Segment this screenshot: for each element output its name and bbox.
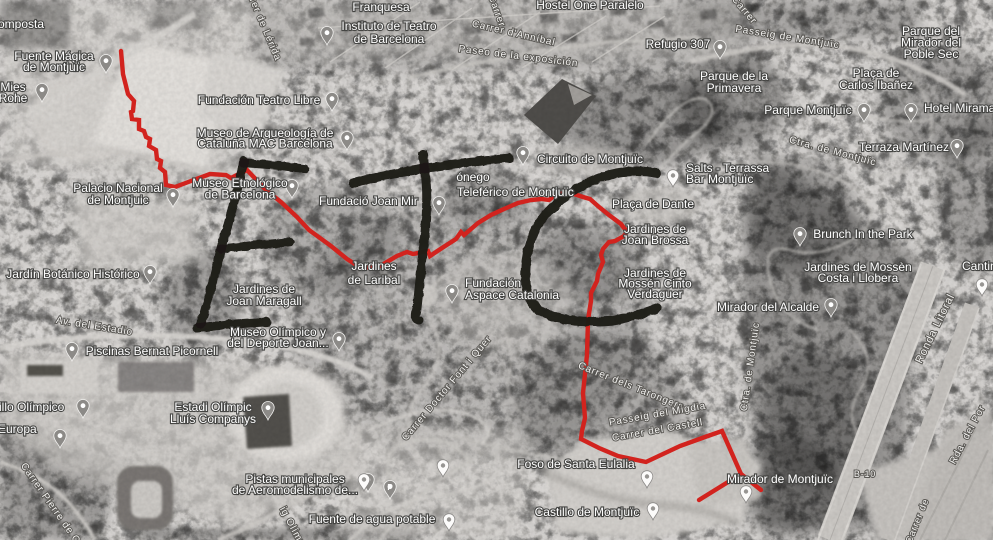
svg-text:Fuente Mágicade Montjuïc: Fuente Mágicade Montjuïc bbox=[14, 49, 94, 74]
svg-text:Museo de Arqueología deCataluñ: Museo de Arqueología deCataluña MAC Barc… bbox=[197, 126, 334, 151]
svg-text:Foso de Santa Eulalia: Foso de Santa Eulalia bbox=[517, 457, 635, 471]
svg-text:Jardín Botánico Histórico: Jardín Botánico Histórico bbox=[6, 267, 140, 281]
svg-text:Jardines de MossènCosta i Llob: Jardines de MossènCosta i Llobera bbox=[804, 260, 911, 285]
svg-text:Mirador de Montjuïc: Mirador de Montjuïc bbox=[727, 472, 833, 486]
svg-text:Museo Etnológicode Barcelona: Museo Etnológicode Barcelona bbox=[192, 176, 288, 202]
svg-text:Museo Olímpico ydel Deporte Jo: Museo Olímpico ydel Deporte Joan... bbox=[227, 325, 328, 350]
svg-text:Mirador del Alcalde: Mirador del Alcalde bbox=[717, 300, 819, 314]
svg-text:Jardines deJoan Maragall: Jardines deJoan Maragall bbox=[226, 282, 301, 308]
svg-text:Fuente de agua potable: Fuente de agua potable bbox=[309, 512, 436, 526]
svg-text:Jardines deMossén CintoVerdagu: Jardines deMossén CintoVerdaguer bbox=[618, 266, 692, 301]
svg-text:Teleférico de Montjuïc: Teleférico de Montjuïc bbox=[457, 185, 574, 199]
svg-text:Piscinas Bernat Picornell: Piscinas Bernat Picornell bbox=[86, 344, 219, 358]
svg-text:Parque delMirador delPoble Sec: Parque delMirador delPoble Sec bbox=[901, 24, 961, 61]
svg-text:Refugio 307: Refugio 307 bbox=[646, 37, 711, 51]
svg-text:Plaça de Dante: Plaça de Dante bbox=[612, 197, 694, 211]
svg-text:MiesRohe: MiesRohe bbox=[0, 80, 28, 105]
svg-text:Castillo de Montjuïc: Castillo de Montjuïc bbox=[535, 505, 640, 519]
svg-text:Fundación Teatro Libre: Fundación Teatro Libre bbox=[198, 93, 321, 107]
svg-text:Parque de laPrimavera: Parque de laPrimavera bbox=[700, 69, 768, 95]
svg-text:Estadi OlímpicLluís Companys: Estadi OlímpicLluís Companys bbox=[170, 400, 256, 426]
svg-text:Fundació Joan Mir: Fundació Joan Mir bbox=[319, 194, 418, 208]
svg-text:Hostel One Paralelo: Hostel One Paralelo bbox=[536, 0, 644, 12]
svg-text:Jardines deJoan Brossa: Jardines deJoan Brossa bbox=[622, 222, 689, 247]
svg-text:Brunch In the Park: Brunch In the Park bbox=[813, 227, 913, 241]
svg-text:Cantin: Cantin bbox=[962, 259, 993, 273]
svg-text:illo Olímpico: illo Olímpico bbox=[0, 400, 65, 414]
svg-text:Pistas municipalesde Aeromodel: Pistas municipalesde Aeromodelismo de... bbox=[232, 472, 358, 497]
svg-text:Circuito de Montjuïc: Circuito de Montjuïc bbox=[537, 152, 643, 166]
svg-text:Parque Montjuïc: Parque Montjuïc bbox=[764, 103, 851, 117]
svg-text:Franquesa: Franquesa bbox=[352, 0, 410, 14]
svg-text:Instituto de Teatrode Barcelon: Instituto de Teatrode Barcelona bbox=[341, 19, 437, 46]
svg-text:B-10: B-10 bbox=[854, 469, 876, 479]
svg-text:Terraza Martínez: Terraza Martínez bbox=[859, 140, 949, 154]
svg-text:P: P bbox=[387, 483, 393, 492]
svg-text:Hotel Miramar: Hotel Miramar bbox=[924, 101, 993, 115]
svg-text:omposta: omposta bbox=[0, 17, 44, 31]
svg-text:ónego: ónego bbox=[456, 170, 490, 184]
svg-text:Europa: Europa bbox=[0, 422, 37, 436]
svg-text:Jardinesde Laribal: Jardinesde Laribal bbox=[348, 259, 401, 287]
